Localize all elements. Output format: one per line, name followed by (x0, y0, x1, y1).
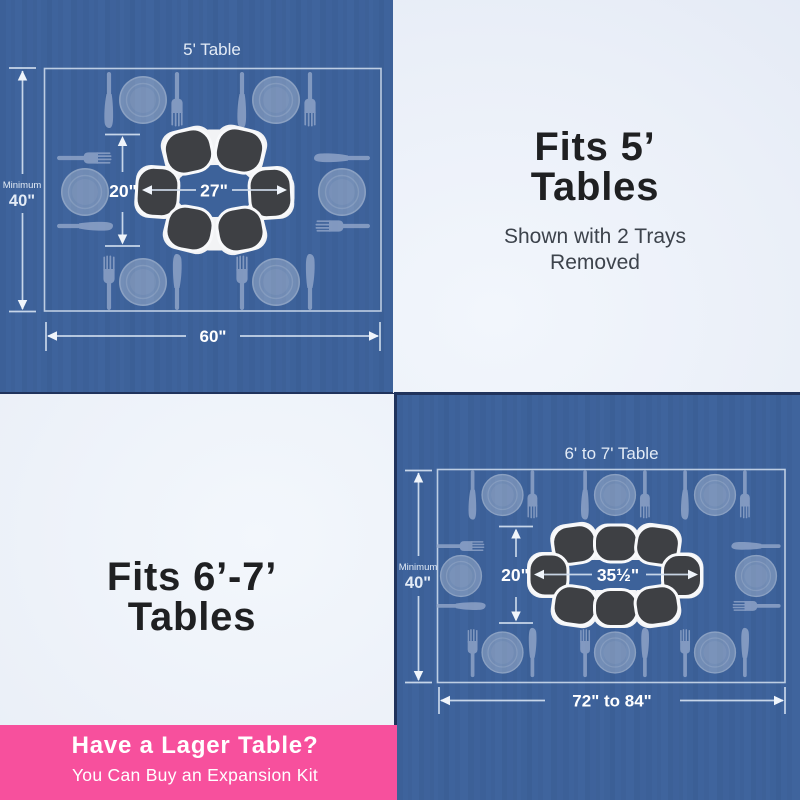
svg-text:5' Table: 5' Table (183, 40, 241, 59)
svg-text:60": 60" (200, 327, 227, 346)
svg-text:6' to 7' Table: 6' to 7' Table (564, 444, 658, 463)
svg-text:20": 20" (109, 181, 137, 201)
svg-text:72" to 84": 72" to 84" (572, 692, 651, 711)
svg-text:Minimum: Minimum (399, 562, 438, 573)
svg-text:40": 40" (405, 574, 431, 592)
svg-text:20": 20" (501, 565, 529, 585)
svg-text:27": 27" (200, 181, 228, 201)
svg-text:35½": 35½" (597, 565, 639, 585)
svg-text:40": 40" (9, 192, 35, 210)
svg-text:Minimum: Minimum (3, 180, 42, 191)
